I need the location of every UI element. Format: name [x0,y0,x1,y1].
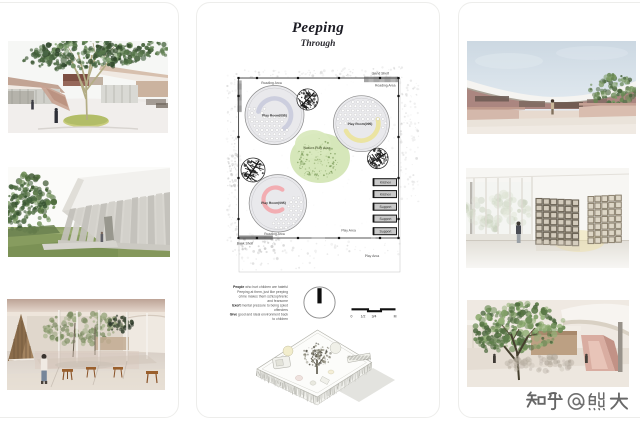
svg-text:Give good and ideal environmen: Give good and ideal environment back [230,313,289,317]
svg-text:to children: to children [272,317,288,321]
svg-text:and fearsome: and fearsome [267,299,288,303]
svg-text:Support: Support [380,205,392,209]
svg-text:Reading Area: Reading Area [264,232,285,236]
svg-text:Nature Play Area: Nature Play Area [303,146,330,150]
svg-text:1/2: 1/2 [361,315,366,319]
svg-text:Sand Shelf: Sand Shelf [372,71,389,75]
svg-text:Reading Area: Reading Area [261,81,282,85]
svg-text:Book Shelf: Book Shelf [237,241,253,245]
svg-text:Play Area: Play Area [341,229,356,233]
svg-text:Kitchen: Kitchen [380,181,391,185]
svg-text:0: 0 [351,315,353,319]
svg-text:3/4: 3/4 [372,315,377,319]
svg-text:Play Room(095): Play Room(095) [261,201,286,205]
svg-text:Reading Area: Reading Area [375,84,396,88]
svg-text:Peeping at them, just like pee: Peeping at them, just like peeping [237,290,288,294]
svg-text:People who hurt children are h: People who hurt children are hateful [233,285,288,289]
svg-text:offenders: offenders [274,308,288,312]
svg-text:Support: Support [380,230,392,234]
svg-text:Exert mental pressure to being: Exert mental pressure to being spied [232,303,288,307]
svg-text:Kitchen: Kitchen [380,193,391,197]
svg-text:Play Area: Play Area [365,254,380,258]
svg-text:Play Room(095): Play Room(095) [348,122,373,126]
svg-text:crime makes them schizophrenic: crime makes them schizophrenic [239,294,289,298]
svg-text:M: M [394,315,397,319]
svg-text:Play Room(095): Play Room(095) [262,113,287,117]
svg-text:Support: Support [380,217,392,221]
